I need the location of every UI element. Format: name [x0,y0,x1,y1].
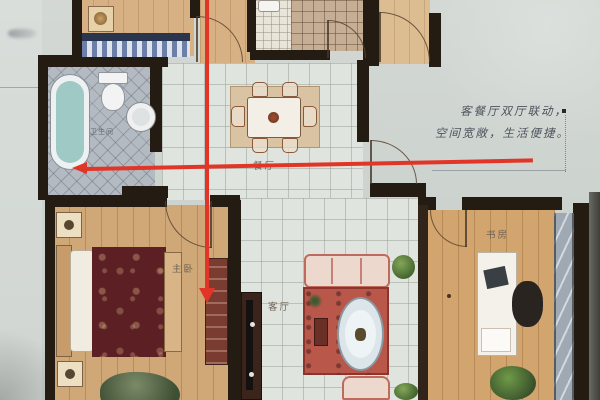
living-room-label: 客厅 [268,299,291,313]
wall [250,50,330,60]
sofa-cushion-line [331,258,333,284]
cabinet-knob [249,372,254,377]
study-window [554,213,574,400]
note-line2: 空间宽敞，生活便捷。 [435,125,570,141]
study-plant [490,366,536,400]
dining-chair [252,82,268,97]
master-bed-blanket [92,247,166,357]
note-leader-vertical [565,115,566,172]
nightstand-knob [64,220,74,230]
photo-edge-dark-right [589,192,600,400]
sink-counter [258,0,280,12]
dining-chair [282,82,298,97]
wash-basin-inner [132,108,150,126]
wall [247,0,256,52]
bathtub-inner [56,81,84,163]
sofa [304,254,390,288]
desk-papers [481,328,511,352]
wall [38,55,48,200]
faint-handwriting-mark [8,29,36,38]
wall [573,203,589,400]
living-plant-bottom [394,383,418,400]
rug-palm-motif [306,292,324,310]
page-fold-line [0,87,38,88]
living-plant-top [392,255,415,279]
toilet-bowl [101,83,125,111]
wall [370,183,426,197]
note-leader-horizontal [432,170,566,171]
door-leaf [465,210,467,247]
red-arrow-horizontal-head [72,162,87,174]
door-leaf [196,16,198,62]
study-label: 书房 [486,227,509,241]
wall [418,205,428,400]
wall [45,195,55,400]
floor-dot [447,294,451,298]
bed2-blanket [82,41,190,57]
wall [462,197,562,210]
door-leaf [327,20,329,58]
cabinet-knob [250,322,255,327]
dining-chair [282,138,298,153]
master-bedroom-label: 主卧 [172,261,195,275]
wall [357,60,369,142]
coffee-table-item [355,328,366,341]
door-leaf [210,201,212,248]
note-line1: 客餐厅双厅联动， [460,103,568,119]
table-centerpiece [268,112,279,123]
master-bed-pillows [70,250,94,352]
wall [45,195,167,207]
dining-chair [231,106,245,127]
rug-cushion [314,318,328,346]
door-leaf [379,12,381,62]
desk-chair [512,281,543,327]
armchair [342,376,390,400]
nightstand-knob [65,369,75,379]
red-arrow-vertical [205,0,209,290]
red-arrow-vertical-head [199,288,215,303]
bed2-headband [82,33,190,41]
sofa-cushion-line [360,258,362,284]
wall [228,200,241,400]
bathroom-label: 卫生间 [90,127,114,137]
floor-plan-photo: 卫生间 餐厅 主卧 客厅 书房 客餐厅双厅联动， 空 [0,0,600,400]
lamp [94,12,107,25]
note-bullet [562,109,566,113]
dining-chair [303,106,317,127]
wall [72,0,82,57]
wall [429,13,441,67]
dining-chair [252,138,268,153]
